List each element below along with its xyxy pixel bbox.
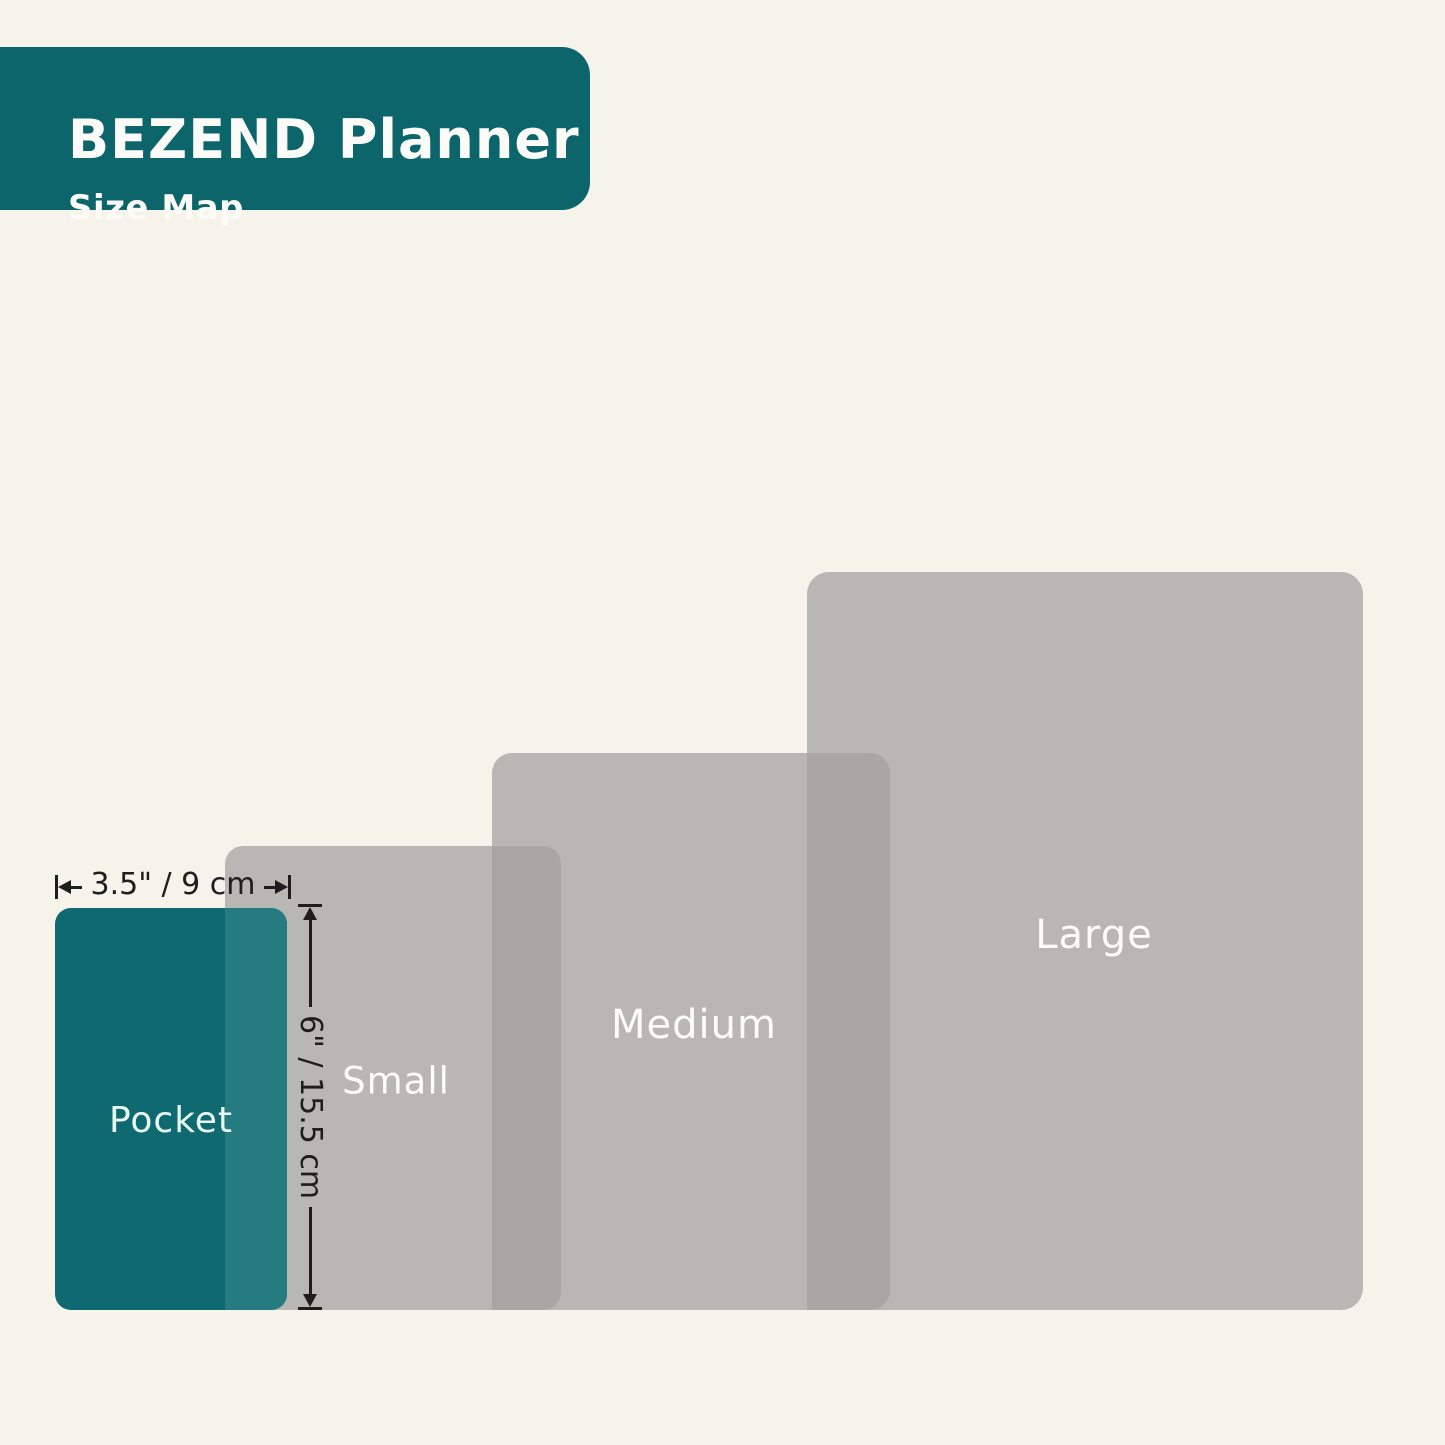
- width-dim-right-line: [264, 886, 275, 889]
- width-dim-right-tick: [288, 875, 291, 899]
- height-dim-bottom-line: [309, 1207, 312, 1294]
- small-size-label: Small: [342, 1063, 450, 1100]
- arrow-down-icon: [303, 1294, 317, 1307]
- width-dim-left-line: [71, 886, 82, 889]
- medium-size-label: Medium: [611, 1005, 777, 1045]
- medium-large-overlap-shade: [807, 753, 890, 1310]
- pocket-small-overlap-shade: [225, 908, 287, 1310]
- height-dimension-label: 6" / 15.5 cm: [295, 1007, 325, 1207]
- large-size-label: Large: [1035, 915, 1153, 955]
- header-badge: BEZEND Planner Size Map: [0, 47, 590, 210]
- pocket-height-dimension: 6" / 15.5 cm: [294, 904, 326, 1310]
- arrow-left-icon: [58, 880, 71, 894]
- height-dim-top-line: [309, 920, 312, 1007]
- size-map-canvas: Pocket Small Medium Large 3.5" / 9 cm 6"…: [0, 0, 1445, 1445]
- pocket-size-label: Pocket: [109, 1103, 233, 1139]
- pocket-width-dimension: 3.5" / 9 cm: [55, 869, 291, 905]
- height-dim-bottom-tick: [298, 1307, 322, 1310]
- width-dimension-label: 3.5" / 9 cm: [82, 870, 263, 900]
- page-title: BEZEND Planner: [68, 113, 580, 167]
- arrow-right-icon: [275, 880, 288, 894]
- arrow-up-icon: [303, 907, 317, 920]
- page-subtitle: Size Map: [68, 191, 244, 225]
- small-medium-overlap-shade: [492, 846, 561, 1310]
